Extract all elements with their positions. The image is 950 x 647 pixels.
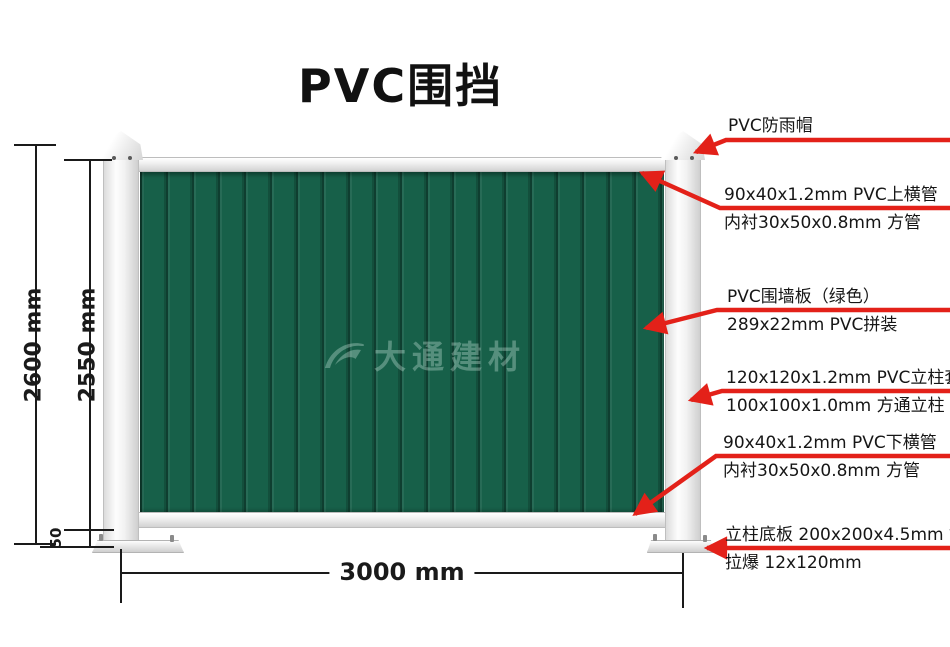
annotation-base-plate: 立柱底板 200x200x4.5mm 钢板 拉爆 12x120mm [725,521,950,577]
annotation-line: 289x22mm PVC拼装 [727,311,897,339]
datong-logo-icon [323,338,365,372]
annotation-wall-panel: PVC围墙板（绿色） 289x22mm PVC拼装 [727,283,897,339]
dimension-label-panel-height: 2550 mm [76,288,101,403]
left-rain-cap [99,131,143,160]
green-wall-panel: 大通建材 [140,172,664,512]
screw-icon [112,156,116,160]
watermark: 大通建材 [323,332,526,378]
dimension-tick [120,549,122,603]
dimension-tick [64,159,112,161]
annotation-bottom-rail: 90x40x1.2mm PVC下横管 内衬30x50x0.8mm 方管 [723,429,937,485]
annotation-line: 90x40x1.2mm PVC下横管 [723,429,937,457]
screw-icon [674,156,678,160]
screw-icon [690,156,694,160]
annotation-line: 90x40x1.2mm PVC上横管 [724,181,938,209]
annotation-post-sleeve: 120x120x1.2mm PVC立柱套 100x100x1.0mm 方通立柱 [726,364,950,420]
right-rain-cap [661,131,705,160]
anchor-bolt-icon [170,535,174,542]
right-post [665,149,701,547]
dimension-tick [682,553,684,608]
annotation-line: 内衬30x50x0.8mm 方管 [724,209,938,237]
anchor-bolt-icon [653,534,657,541]
pvc-fence-diagram: PVC围挡 大通建材 2600 mm 2550 mm 50 [0,0,950,647]
annotation-top-rail: 90x40x1.2mm PVC上横管 内衬30x50x0.8mm 方管 [724,181,938,237]
dimension-label-base-height: 50 [47,528,65,549]
page-title: PVC围挡 [298,50,503,116]
leader-rain-cap [696,140,950,152]
dimension-label-total-height: 2600 mm [22,288,47,403]
annotation-line: 100x100x1.0mm 方通立柱 [726,392,950,420]
annotation-line: 立柱底板 200x200x4.5mm 钢板 [725,521,950,549]
watermark-text: 大通建材 [374,332,526,378]
dimension-tick [64,529,114,531]
screw-icon [128,156,132,160]
annotation-rain-cap: PVC防雨帽 [728,112,813,140]
anchor-bolt-icon [703,535,707,542]
bottom-rail [136,512,668,528]
annotation-line: 内衬30x50x0.8mm 方管 [723,457,937,485]
left-post [103,149,139,547]
anchor-bolt-icon [99,534,103,541]
annotation-line: 120x120x1.2mm PVC立柱套 [726,364,950,392]
dimension-label-width: 3000 mm [329,558,474,586]
dimension-tick [14,144,56,146]
annotation-line: 拉爆 12x120mm [725,549,950,577]
top-rail [136,157,668,172]
annotation-line: PVC防雨帽 [728,112,813,140]
annotation-line: PVC围墙板（绿色） [727,283,897,311]
